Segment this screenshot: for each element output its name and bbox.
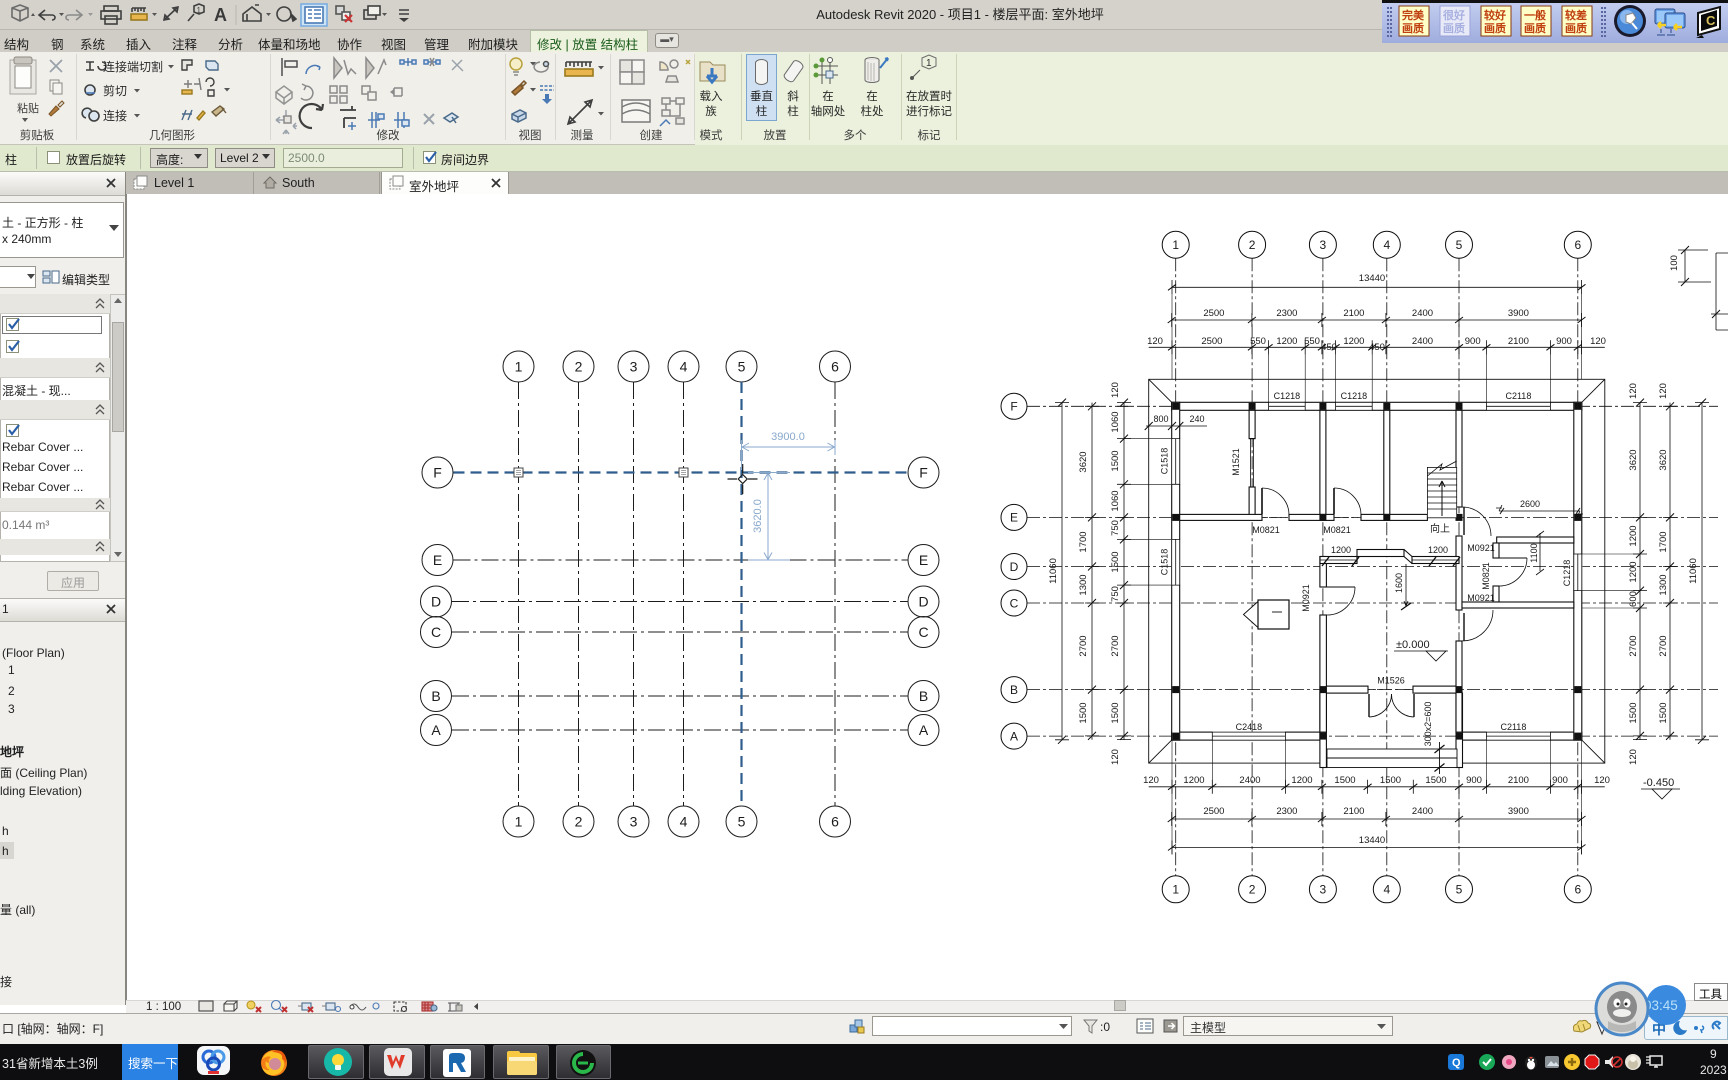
svg-text:2300: 2300 xyxy=(1276,806,1297,817)
svg-text:5: 5 xyxy=(738,359,746,375)
svg-text:3: 3 xyxy=(630,814,638,830)
svg-text:族: 族 xyxy=(705,104,717,118)
svg-text:标记: 标记 xyxy=(918,129,941,142)
svg-text:Q: Q xyxy=(1452,1057,1461,1069)
svg-text:C2118: C2118 xyxy=(1500,722,1526,732)
svg-text:2700: 2700 xyxy=(1628,635,1639,656)
svg-text:2: 2 xyxy=(1249,238,1256,252)
svg-text:较好: 较好 xyxy=(1484,8,1506,22)
svg-text:画质: 画质 xyxy=(1524,21,1546,35)
svg-text:F: F xyxy=(919,465,928,481)
svg-text:在放置时: 在放置时 xyxy=(906,89,952,103)
svg-text:4: 4 xyxy=(1383,238,1390,252)
svg-text:向上: 向上 xyxy=(1430,522,1450,535)
svg-text:1200: 1200 xyxy=(1276,336,1297,347)
svg-text:A: A xyxy=(919,722,929,738)
svg-text:较差: 较差 xyxy=(1565,8,1587,22)
svg-text:M1521: M1521 xyxy=(1231,448,1241,476)
svg-text:450: 450 xyxy=(1369,342,1385,353)
svg-text:C1518: C1518 xyxy=(1160,549,1170,576)
svg-text:1: 1 xyxy=(1172,883,1179,897)
svg-text:1: 1 xyxy=(515,814,523,830)
svg-text:1500: 1500 xyxy=(1110,551,1121,572)
svg-text:900: 900 xyxy=(1552,775,1568,786)
svg-text:3620: 3620 xyxy=(1658,449,1669,470)
svg-text:3: 3 xyxy=(1320,238,1327,252)
svg-text:550: 550 xyxy=(1304,336,1320,347)
svg-text:M0921: M0921 xyxy=(1467,593,1495,603)
svg-text:6: 6 xyxy=(831,359,839,375)
svg-text:2100: 2100 xyxy=(1508,336,1529,347)
svg-text:5: 5 xyxy=(738,814,746,830)
svg-text:120: 120 xyxy=(1110,382,1121,398)
svg-text:1300: 1300 xyxy=(1658,574,1669,595)
svg-text:完美: 完美 xyxy=(1402,8,1425,22)
svg-text:画质: 画质 xyxy=(1443,21,1465,35)
svg-text:2400: 2400 xyxy=(1412,806,1433,817)
svg-text:3: 3 xyxy=(1320,883,1327,897)
svg-text:连接端切割: 连接端切割 xyxy=(103,59,163,74)
svg-text:画质: 画质 xyxy=(1565,21,1587,35)
svg-text:4: 4 xyxy=(680,814,688,830)
svg-text:M0821: M0821 xyxy=(1481,562,1491,590)
svg-text:-0.450: -0.450 xyxy=(1643,777,1674,789)
svg-text:C1218: C1218 xyxy=(1341,391,1368,401)
svg-text:550: 550 xyxy=(1250,336,1266,347)
svg-text:连接: 连接 xyxy=(103,108,127,123)
svg-text:900: 900 xyxy=(1466,775,1482,786)
svg-text:多个: 多个 xyxy=(844,128,867,142)
svg-text:6: 6 xyxy=(1574,238,1581,252)
svg-text:3620: 3620 xyxy=(1078,451,1089,472)
svg-text:120: 120 xyxy=(1658,383,1669,399)
svg-text:B: B xyxy=(919,688,928,704)
svg-text:D: D xyxy=(1010,560,1019,574)
svg-text:2: 2 xyxy=(1249,883,1256,897)
svg-text:在: 在 xyxy=(822,90,834,103)
svg-text:F: F xyxy=(433,465,442,481)
svg-text:2400: 2400 xyxy=(1412,336,1433,347)
svg-text:模式: 模式 xyxy=(700,129,723,142)
svg-text:几何图形: 几何图形 xyxy=(149,129,195,142)
svg-text:C1218: C1218 xyxy=(1274,391,1301,401)
svg-text:C2118: C2118 xyxy=(1505,391,1531,401)
svg-text:C1518: C1518 xyxy=(1160,448,1170,475)
svg-text:载入: 载入 xyxy=(700,90,723,103)
svg-text:D: D xyxy=(918,594,928,610)
svg-text:900: 900 xyxy=(1556,336,1572,347)
svg-text:1500: 1500 xyxy=(1658,702,1669,723)
svg-text:3900.0: 3900.0 xyxy=(771,431,805,443)
svg-text:800: 800 xyxy=(1153,414,1168,424)
svg-text:1500: 1500 xyxy=(1078,702,1089,723)
svg-text:300x2=600: 300x2=600 xyxy=(1423,702,1433,747)
svg-text:C: C xyxy=(1010,596,1019,610)
svg-text:1: 1 xyxy=(926,58,932,69)
svg-text:1200: 1200 xyxy=(1291,775,1312,786)
svg-text:画质: 画质 xyxy=(1484,21,1506,35)
svg-text:2700: 2700 xyxy=(1110,635,1121,656)
svg-text:13440: 13440 xyxy=(1359,273,1385,284)
svg-text:4: 4 xyxy=(1383,883,1390,897)
svg-text:D: D xyxy=(431,594,441,610)
svg-text:3900: 3900 xyxy=(1508,308,1529,319)
svg-text:6: 6 xyxy=(1574,883,1581,897)
svg-text:M0821: M0821 xyxy=(1323,525,1351,535)
svg-text:在: 在 xyxy=(866,90,878,103)
svg-text:2300: 2300 xyxy=(1276,308,1297,319)
svg-text:柱: 柱 xyxy=(787,104,799,118)
svg-text:100: 100 xyxy=(1669,255,1680,271)
svg-text:120: 120 xyxy=(1590,336,1606,347)
svg-text:1200: 1200 xyxy=(1343,336,1364,347)
svg-text:创建: 创建 xyxy=(640,128,663,142)
svg-text:900: 900 xyxy=(1465,336,1481,347)
svg-text:E: E xyxy=(919,552,928,568)
svg-text:M1526: M1526 xyxy=(1377,676,1405,686)
svg-text:1: 1 xyxy=(197,6,202,15)
svg-text:2700: 2700 xyxy=(1078,635,1089,656)
svg-text:2100: 2100 xyxy=(1343,308,1364,319)
svg-text:测量: 测量 xyxy=(571,129,594,142)
svg-text:1500: 1500 xyxy=(1110,450,1121,471)
svg-text:5: 5 xyxy=(1456,883,1463,897)
svg-text:11060: 11060 xyxy=(1048,558,1059,584)
svg-text:1700: 1700 xyxy=(1658,531,1669,552)
svg-text:C: C xyxy=(1706,13,1716,28)
svg-text:轴网处: 轴网处 xyxy=(811,104,846,118)
svg-text:600: 600 xyxy=(1628,591,1639,607)
svg-text:120: 120 xyxy=(1628,749,1639,765)
svg-text:M0921: M0921 xyxy=(1467,543,1495,553)
svg-text:视图: 视图 xyxy=(519,128,542,142)
svg-text:B: B xyxy=(1010,683,1018,697)
svg-text:1200: 1200 xyxy=(1183,775,1204,786)
svg-text:柱处: 柱处 xyxy=(861,104,884,118)
svg-text:2100: 2100 xyxy=(1343,806,1364,817)
svg-text:3900: 3900 xyxy=(1508,806,1529,817)
svg-text:1500: 1500 xyxy=(1425,775,1446,786)
svg-text:进行标记: 进行标记 xyxy=(906,105,952,118)
svg-text:1600: 1600 xyxy=(1394,573,1404,593)
svg-text:3620.0: 3620.0 xyxy=(752,499,764,533)
svg-text:1060: 1060 xyxy=(1110,411,1121,432)
svg-text:750: 750 xyxy=(1110,520,1121,536)
svg-text:2600: 2600 xyxy=(1520,499,1540,509)
svg-text:240: 240 xyxy=(1189,414,1204,424)
svg-text:3: 3 xyxy=(630,359,638,375)
svg-text:1200: 1200 xyxy=(1628,561,1639,582)
svg-text:2400: 2400 xyxy=(1239,775,1260,786)
svg-text:画质: 画质 xyxy=(1402,21,1424,35)
svg-text:450: 450 xyxy=(1321,342,1337,353)
svg-text:120: 120 xyxy=(1110,749,1121,765)
svg-text:剪贴板: 剪贴板 xyxy=(20,128,55,142)
svg-text:5: 5 xyxy=(1456,238,1463,252)
svg-text:2500: 2500 xyxy=(1201,336,1222,347)
svg-text:2100: 2100 xyxy=(1508,775,1529,786)
svg-text:修改: 修改 xyxy=(377,128,400,142)
svg-text:F: F xyxy=(1010,400,1017,414)
svg-text:2: 2 xyxy=(575,814,583,830)
svg-text:13440: 13440 xyxy=(1359,835,1385,846)
svg-text:一般: 一般 xyxy=(1524,8,1546,22)
svg-text:E: E xyxy=(1010,511,1018,525)
svg-text:C1218: C1218 xyxy=(1562,560,1572,587)
svg-text:1100: 1100 xyxy=(1529,543,1539,562)
svg-text:1: 1 xyxy=(515,359,523,375)
svg-text:A: A xyxy=(214,5,227,25)
svg-text:A: A xyxy=(1010,729,1018,743)
svg-text:放置: 放置 xyxy=(764,128,787,142)
svg-text:120: 120 xyxy=(1147,336,1163,347)
svg-text:C: C xyxy=(918,624,928,640)
svg-text:3620: 3620 xyxy=(1628,449,1639,470)
svg-text:1 : 100: 1 : 100 xyxy=(146,1001,181,1013)
svg-text:1500: 1500 xyxy=(1110,702,1121,723)
svg-text:C2418: C2418 xyxy=(1236,722,1263,732)
svg-text:M0921: M0921 xyxy=(1301,584,1311,612)
svg-text:A: A xyxy=(431,722,441,738)
svg-text:B: B xyxy=(431,688,440,704)
svg-text:2: 2 xyxy=(575,359,583,375)
svg-text:4: 4 xyxy=(680,359,688,375)
svg-text:1500: 1500 xyxy=(1334,775,1355,786)
svg-text:1500: 1500 xyxy=(1380,775,1401,786)
svg-text:120: 120 xyxy=(1594,775,1610,786)
svg-text:1060: 1060 xyxy=(1110,490,1121,511)
svg-text:750: 750 xyxy=(1110,586,1121,602)
svg-text:柱: 柱 xyxy=(756,104,768,118)
svg-text:120: 120 xyxy=(1143,775,1159,786)
svg-text:6: 6 xyxy=(831,814,839,830)
svg-text:M0821: M0821 xyxy=(1252,525,1280,535)
svg-text:120: 120 xyxy=(1628,383,1639,399)
svg-text:1200: 1200 xyxy=(1428,545,1448,555)
svg-text:E: E xyxy=(433,552,442,568)
svg-text:很好: 很好 xyxy=(1442,8,1465,22)
svg-text:2400: 2400 xyxy=(1412,308,1433,319)
svg-text:垂直: 垂直 xyxy=(750,89,773,103)
svg-text:1200: 1200 xyxy=(1628,525,1639,546)
svg-text:1500: 1500 xyxy=(1628,702,1639,723)
svg-text:C: C xyxy=(431,624,441,640)
svg-text:1: 1 xyxy=(1172,238,1179,252)
svg-text:剪切: 剪切 xyxy=(103,83,127,98)
svg-text:1700: 1700 xyxy=(1078,531,1089,552)
svg-text:2500: 2500 xyxy=(1203,308,1224,319)
svg-text:斜: 斜 xyxy=(787,90,799,103)
svg-text:±0.000: ±0.000 xyxy=(1396,639,1430,651)
svg-text:粘贴: 粘贴 xyxy=(17,101,39,115)
svg-text:1200: 1200 xyxy=(1331,545,1351,555)
svg-text:11060: 11060 xyxy=(1688,558,1699,584)
svg-text:1300: 1300 xyxy=(1078,574,1089,595)
svg-text:2500: 2500 xyxy=(1203,806,1224,817)
svg-text:2700: 2700 xyxy=(1658,635,1669,656)
